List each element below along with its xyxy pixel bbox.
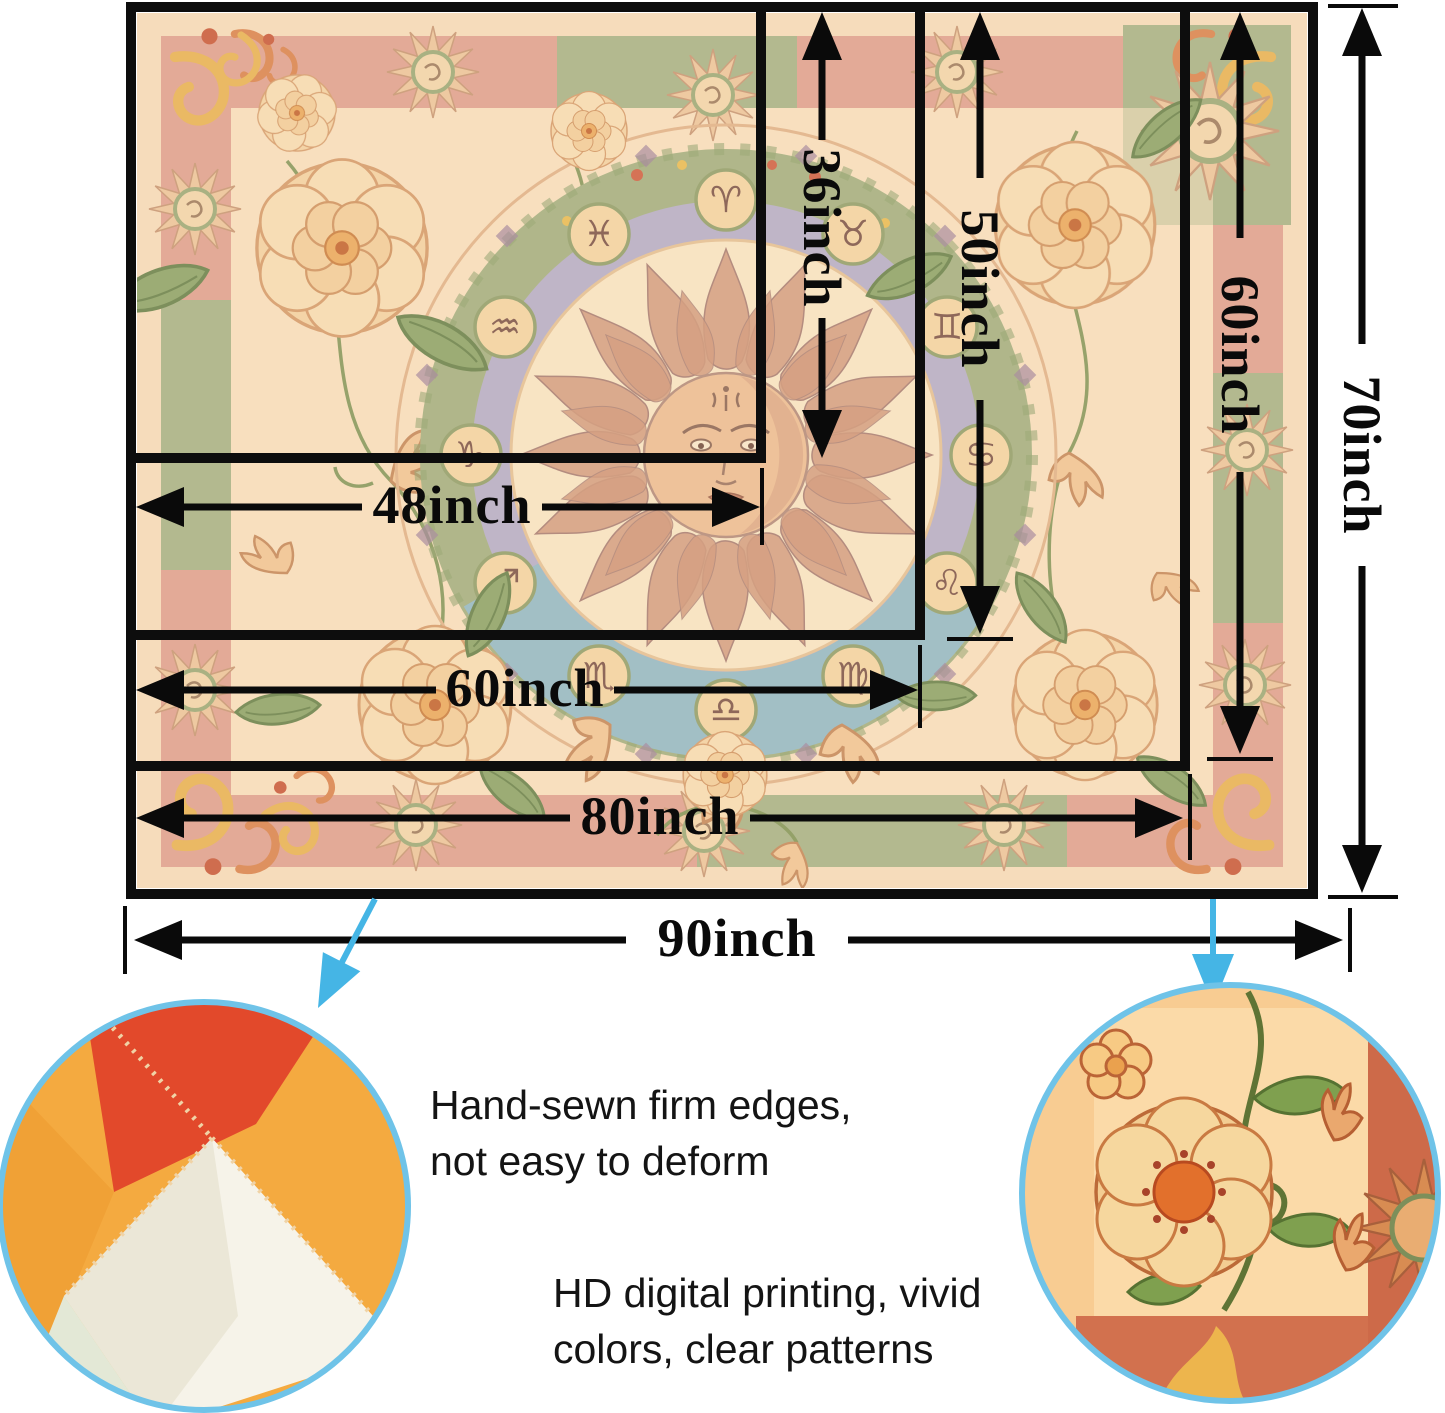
dimension-label-48inch: 48inch — [372, 474, 531, 536]
dimension-label-60inch-v: 60inch — [1209, 275, 1271, 434]
dimension-label-60inch-h: 60inch — [445, 657, 604, 719]
feature-text-print-line1: HD digital printing, vivid — [553, 1266, 981, 1322]
dimension-label-50inch: 50inch — [949, 209, 1011, 368]
fabric-closeup-circle — [0, 996, 414, 1413]
feature-text-sewn: Hand-sewn firm edges, not easy to deform — [430, 1078, 852, 1190]
feature-text-sewn-line1: Hand-sewn firm edges, — [430, 1078, 852, 1134]
dimension-label-90inch: 90inch — [657, 907, 816, 969]
dimension-label-36inch: 36inch — [791, 148, 853, 307]
pattern-closeup-circle — [1016, 980, 1445, 1410]
dimension-label-70inch: 70inch — [1331, 375, 1393, 534]
feature-text-print-line2: colors, clear patterns — [553, 1322, 981, 1378]
dimension-label-80inch: 80inch — [580, 785, 739, 847]
product-size-chart: ♈ ♉ ♊ ♋ ♌ ♍ ♎ ♏ ♐ ♑ ♒ ♓ — [0, 0, 1445, 1413]
feature-text-sewn-line2: not easy to deform — [430, 1134, 852, 1190]
feature-text-print: HD digital printing, vivid colors, clear… — [553, 1266, 981, 1378]
